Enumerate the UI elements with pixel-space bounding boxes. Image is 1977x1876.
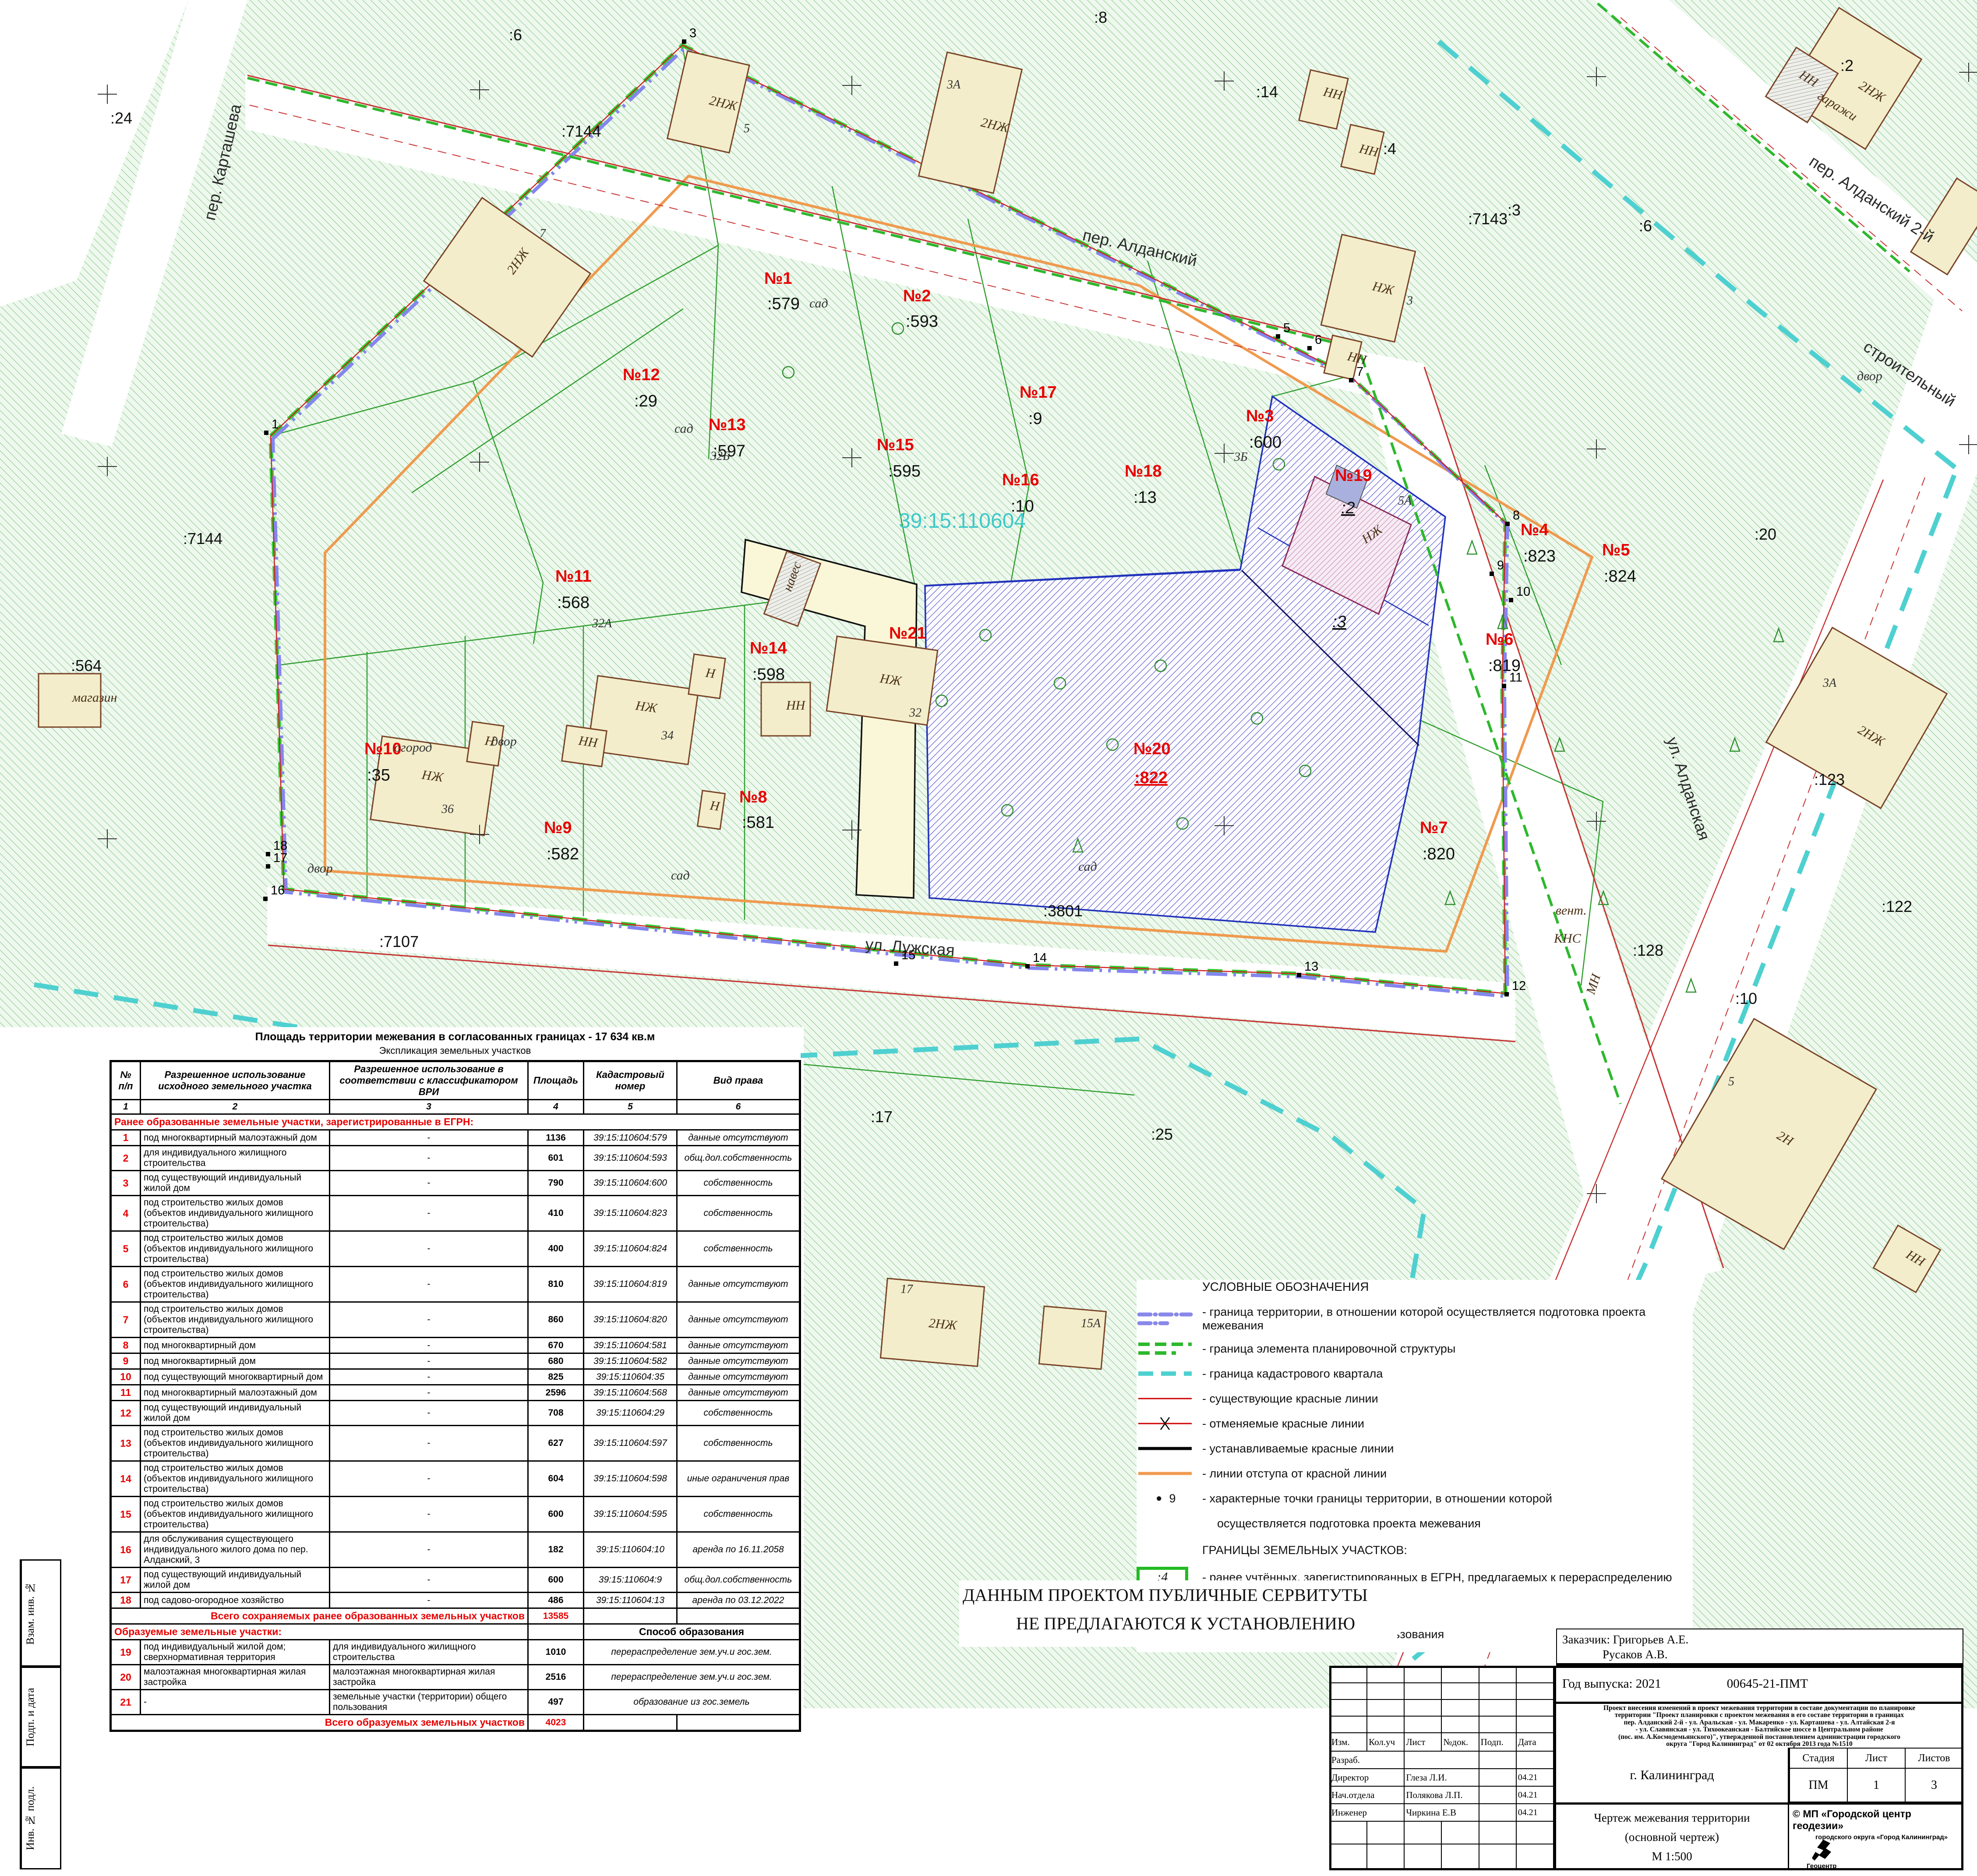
table-row: 10под существующий многоквартирный дом-8… (111, 1369, 800, 1385)
legend-text: - характерные точки границы территории, … (1202, 1492, 1693, 1505)
document-code: 00645-21-ПМТ (1727, 1677, 1808, 1691)
map-label: :820 (1423, 845, 1455, 863)
map-label: :24 (110, 109, 132, 127)
map-label: №5 (1602, 541, 1630, 559)
map-label: :35 (367, 766, 390, 784)
boundary-point (1025, 964, 1030, 968)
map-label: 34 (661, 729, 674, 742)
map-label: :17 (871, 1108, 893, 1126)
drawing-title-line2: (основной чертеж) (1556, 1827, 1788, 1847)
table-row: 11под многоквартирный малоэтажный дом-25… (111, 1385, 800, 1401)
map-label: :7143 (1468, 210, 1507, 228)
boundary-point (1490, 572, 1494, 576)
boundary-point-number: 13 (1304, 960, 1318, 974)
boundary-point-number: 3 (689, 26, 696, 40)
table-row: 18под садово-огородное хозяйство-48639:1… (111, 1593, 800, 1608)
map-label: :3 (1332, 613, 1346, 631)
legend-text: - отменяемые красные линии (1202, 1417, 1693, 1431)
map-label: №8 (739, 788, 767, 806)
map-label: :593 (906, 312, 938, 331)
table-row: 15под строительство жилых домов (объекто… (111, 1497, 800, 1532)
map-label: 36 (441, 802, 454, 816)
geocentre-logo-label: Геоцентр (1807, 1862, 1836, 1870)
boundary-point (1297, 973, 1301, 977)
map-label: №6 (1486, 630, 1514, 649)
boundary-point-number: 14 (1033, 951, 1047, 965)
legend-item: - граница территории, в отношении которо… (1137, 1305, 1693, 1332)
section-row: Образуемые земельные участки:Способ обра… (111, 1624, 800, 1640)
map-label: №11 (555, 567, 592, 586)
map-label: НН (577, 733, 600, 750)
map-label: №15 (877, 436, 914, 454)
map-label: №19 (1335, 466, 1372, 485)
map-label: 3 (1406, 294, 1413, 307)
total-row: Всего образуемых земельных участков4023 (111, 1715, 800, 1731)
map-label: :25 (1151, 1125, 1173, 1143)
legend-text: - граница территории, в отношении которо… (1202, 1305, 1693, 1332)
sidebar-label-vzam: Взам. инв. № (21, 1561, 39, 1665)
map-label: :7144 (561, 122, 601, 140)
map-label: сад (674, 421, 693, 436)
map-label: 7 (540, 227, 546, 240)
map-label: :14 (1256, 83, 1278, 101)
map-label: 32 (909, 706, 921, 720)
legend-item: - линии отступа от красной линии (1137, 1465, 1693, 1482)
boundary-point-number: 11 (1509, 671, 1522, 685)
boundary-point (682, 39, 686, 44)
map-label: двор (1857, 369, 1882, 383)
project-description: Проект внесения изменений в проект межев… (1556, 1704, 1963, 1748)
map-label: №4 (1521, 521, 1549, 539)
map-label: :2 (1840, 57, 1853, 74)
map-label: :3801 (1043, 902, 1083, 920)
map-label: :2 (1341, 499, 1355, 517)
map-label: 5 (744, 122, 750, 135)
legend-symbol-pt9-icon: ●9 (1137, 1492, 1202, 1505)
sheet: №1№2№3№4№5№6№7№8№9№10№11№12№13№14№15№16№… (0, 0, 1977, 1876)
map-label: 3А (1822, 676, 1837, 690)
legend-item: - граница кадастрового квартала (1137, 1365, 1693, 1382)
map-label: №3 (1246, 407, 1274, 425)
map-label: :3 (1507, 201, 1521, 219)
col-header: Кадастровый номер (584, 1061, 677, 1100)
map-label: :598 (752, 665, 785, 684)
legend-item: ●9- характерные точки границы территории… (1137, 1490, 1693, 1507)
legend-item: осуществляется подготовка проекта межева… (1137, 1515, 1693, 1532)
table-row: 21-земельные участки (территории) общего… (111, 1690, 800, 1715)
boundary-point (1504, 992, 1509, 996)
map-label: сад (809, 296, 828, 311)
boundary-point (1276, 334, 1280, 339)
table-title: Площадь территории межевания в согласова… (109, 1027, 801, 1044)
signature-grid: Изм.Кол.учЛист№док.Подп.ДатаРазраб.Дирек… (1329, 1666, 1556, 1870)
sidebar-label-podp: Подп. и дата (21, 1668, 39, 1766)
legend-section-title: ГРАНИЦЫ ЗЕМЕЛЬНЫХ УЧАСТКОВ: (1202, 1544, 1693, 1557)
map-label: двор (491, 734, 517, 749)
map-label: №17 (1020, 383, 1057, 402)
boundary-point (263, 897, 268, 901)
boundary-point (1505, 522, 1510, 526)
map-label: №13 (709, 416, 746, 434)
boundary-point (266, 852, 270, 856)
table-row: 3под существующий индивидуальный жилой д… (111, 1171, 800, 1196)
legend-symbol-blue-icon (1137, 1310, 1202, 1328)
issue-year: Год выпуска: 2021 (1562, 1677, 1661, 1691)
table-row: 19под индивидуальный жилой дом; сверхнор… (111, 1640, 800, 1665)
table-subtitle: Экспликация земельных участков (109, 1044, 801, 1060)
sidebar-box-inv: Инв. № подл. (20, 1767, 61, 1869)
legend-symbol-cyan-icon (1137, 1369, 1202, 1378)
col-header: Разрешенное использование в соответствии… (330, 1061, 528, 1100)
boundary-point-number: 12 (1512, 979, 1526, 993)
map-label: вент. (1556, 903, 1587, 918)
legend-item: - существующие красные линии (1137, 1390, 1693, 1407)
table-colnum-row: 123456 (111, 1100, 800, 1114)
map-label: 15А (1081, 1317, 1101, 1330)
section-row: Ранее образованные земельные участки, за… (111, 1114, 800, 1130)
map-label: :10 (1735, 989, 1757, 1007)
map-label: :123 (1814, 770, 1845, 788)
legend-text: осуществляется подготовка проекта межева… (1217, 1517, 1693, 1530)
map-label: №16 (1002, 471, 1039, 489)
legend-text: - граница кадастрового квартала (1202, 1367, 1693, 1381)
map-label: КНС (1553, 931, 1582, 946)
table-row: 9под многоквартирный дом-68039:15:110604… (111, 1353, 800, 1369)
boundary-point-number: 9 (1497, 558, 1504, 572)
customer-box: Заказчик: Григорьев А.Е. Русаков А.В. (1556, 1629, 1963, 1666)
servitude-note: ДАННЫМ ПРОЕКТОМ ПУБЛИЧНЫЕ СЕРВИТУТЫ НЕ П… (959, 1580, 1397, 1647)
map-label: :595 (888, 462, 921, 480)
boundary-point-number: 7 (1356, 365, 1363, 379)
map-label: 3А (946, 78, 961, 92)
organization-box: © МП «Городской центр геодезии» городско… (1789, 1805, 1963, 1870)
legend-text: - устанавливаемые красные линии (1202, 1442, 1693, 1456)
servitude-note-line1: ДАННЫМ ПРОЕКТОМ ПУБЛИЧНЫЕ СЕРВИТУТЫ (963, 1585, 1397, 1605)
legend-symbol-orange-icon (1137, 1470, 1202, 1477)
map-label: :579 (767, 295, 800, 313)
city-label: г. Калининград (1630, 1768, 1714, 1783)
table-row: 8под многоквартирный дом-67039:15:110604… (111, 1338, 800, 1353)
map-label: №9 (544, 819, 572, 837)
boundary-point-number: 16 (271, 883, 285, 897)
boundary-point-number: 1 (272, 417, 279, 431)
map-label: :128 (1633, 941, 1663, 959)
map-label: №18 (1125, 462, 1162, 480)
map-label: :13 (1133, 488, 1157, 507)
geocentre-logo-icon (1810, 1839, 1835, 1863)
map-label: 5 (1728, 1075, 1734, 1088)
legend-item: - устанавливаемые красные линии (1137, 1440, 1693, 1457)
customer-line2: Русаков А.В. (1603, 1647, 1963, 1662)
col-header: №п/п (111, 1061, 141, 1100)
map-label: двор (307, 861, 333, 876)
map-label: 5А (1398, 494, 1412, 508)
boundary-point (1349, 378, 1353, 382)
table-row: 14под строительство жилых домов (объекто… (111, 1461, 800, 1497)
map-label: :823 (1523, 547, 1556, 565)
map-label: :20 (1755, 525, 1776, 543)
table-row: 12под существующий индивидуальный жилой … (111, 1401, 800, 1426)
map-label: №12 (623, 366, 660, 384)
legend-item: - отменяемые красные линии (1137, 1415, 1693, 1432)
legend-title: УСЛОВНЫЕ ОБОЗНАЧЕНИЯ (1202, 1280, 1693, 1294)
drawing-title-line1: Чертеж межевания территории (1556, 1808, 1788, 1827)
boundary-point-number: 10 (1516, 585, 1530, 599)
map-label: :564 (71, 657, 102, 675)
map-label: огород (394, 740, 432, 755)
map-label: №7 (1420, 819, 1448, 837)
boundary-point (264, 431, 268, 435)
table-row: 2для индивидуального жилищного строитель… (111, 1146, 800, 1171)
table-row: 4под строительство жилых домов (объектов… (111, 1196, 800, 1231)
map-label: :581 (742, 813, 774, 832)
table-row: 6под строительство жилых домов (объектов… (111, 1267, 800, 1302)
table-row: 13под строительство жилых домов (объекто… (111, 1426, 800, 1461)
boundary-point-number: 17 (273, 851, 287, 865)
map-label: :7144 (183, 530, 222, 548)
legend-item: - граница элемента планировочной структу… (1137, 1340, 1693, 1357)
map-label: :822 (1134, 769, 1168, 787)
legend-symbol-black-icon (1137, 1445, 1202, 1452)
map-label: :4 (1383, 140, 1396, 158)
organization-subname: городского округа «Город Калининград» (1815, 1834, 1962, 1841)
drawing-scale: М 1:500 (1556, 1847, 1788, 1866)
map-label: :122 (1882, 897, 1912, 915)
boundary-point (1502, 684, 1506, 688)
boundary-point-number: 18 (273, 839, 287, 853)
map-label: сад (1078, 859, 1097, 874)
boundary-point-number: 8 (1513, 509, 1520, 523)
sidebar-box-vzam: Взам. инв. № (20, 1559, 61, 1667)
land-plot-table: Площадь территории межевания в согласова… (109, 1027, 801, 1732)
map-label: :568 (557, 594, 590, 612)
boundary-point-number: 6 (1315, 333, 1322, 347)
boundary-point (1509, 598, 1513, 602)
legend-text: - граница элемента планировочной структу… (1202, 1342, 1693, 1356)
map-label: 2НЖ (928, 1316, 958, 1333)
sidebar-label-inv: Инв. № подл. (21, 1769, 39, 1868)
year-box: Год выпуска: 2021 00645-21-ПМТ (1556, 1666, 1963, 1704)
map-label: 17 (900, 1282, 913, 1296)
legend-text: - существующие красные линии (1202, 1392, 1693, 1406)
map-label: №14 (750, 639, 787, 657)
boundary-point (266, 864, 270, 869)
col-header: Площадь (528, 1061, 584, 1100)
map-label: 32А (592, 617, 612, 630)
map-label: №21 (889, 624, 926, 643)
map-label: :9 (1028, 410, 1042, 428)
map-label: 3Б (1234, 450, 1248, 464)
legend-symbol-green-icon (1137, 1340, 1202, 1357)
stage-box: СтадияЛистЛистовПМ13 (1789, 1748, 1963, 1805)
boundary-point (894, 961, 898, 966)
map-label: :7107 (379, 933, 419, 950)
drawing-title-box: Чертеж межевания территории (основной че… (1556, 1805, 1789, 1870)
table-row: 17под существующий индивидуальный жилой … (111, 1568, 800, 1593)
col-header: Вид права (677, 1061, 800, 1100)
table-row: 1под многоквартирный малоэтажный дом-113… (111, 1130, 800, 1146)
total-row: Всего сохраняемых ранее образованных зем… (111, 1608, 800, 1624)
table-row: 5под строительство жилых домов (объектов… (111, 1231, 800, 1267)
legend-text: - линии отступа от красной линии (1202, 1467, 1693, 1480)
map-label: :824 (1604, 567, 1636, 586)
map-label: 32Б (710, 449, 730, 463)
map-label: №1 (764, 269, 792, 288)
table-row: 7под строительство жилых домов (объектов… (111, 1302, 800, 1338)
explication-table: №п/пРазрешенное использование исходного … (109, 1060, 801, 1732)
map-label: сад (671, 868, 690, 883)
sidebar-box-podp: Подп. и дата (20, 1667, 61, 1767)
map-label: №20 (1133, 740, 1171, 758)
map-label: НН (786, 698, 806, 713)
legend-symbol-redx-icon (1137, 1415, 1202, 1432)
boundary-point-number: 15 (901, 948, 915, 962)
table-row: 16для обслуживания существующего индивид… (111, 1532, 800, 1568)
map-label: магазин (72, 690, 117, 705)
map-label: :600 (1249, 433, 1282, 452)
servitude-note-line2: НЕ ПРЕДЛАГАЮТСЯ К УСТАНОВЛЕНИЮ (1016, 1613, 1397, 1634)
legend-symbol-red-icon (1137, 1396, 1202, 1402)
map-label: :29 (634, 392, 657, 410)
map-label: №2 (903, 287, 931, 305)
map-label: :6 (1639, 217, 1652, 235)
col-header: Разрешенное использование исходного земе… (141, 1061, 330, 1100)
map-label: :8 (1094, 8, 1107, 26)
map-label: :6 (509, 26, 522, 44)
map-label: :582 (547, 845, 579, 863)
customer-line1: Заказчик: Григорьев А.Е. (1562, 1632, 1963, 1647)
boundary-point-number: 5 (1283, 321, 1290, 335)
boundary-point (1307, 346, 1312, 350)
organization-name: © МП «Городской центр геодезии» (1793, 1808, 1962, 1832)
table-header-row: №п/пРазрешенное использование исходного … (111, 1061, 800, 1100)
table-row: 20малоэтажная многоквартирная жилая заст… (111, 1665, 800, 1690)
map-label: 39:15:110604 (899, 509, 1026, 533)
city-box: г. Калининград (1556, 1748, 1789, 1805)
